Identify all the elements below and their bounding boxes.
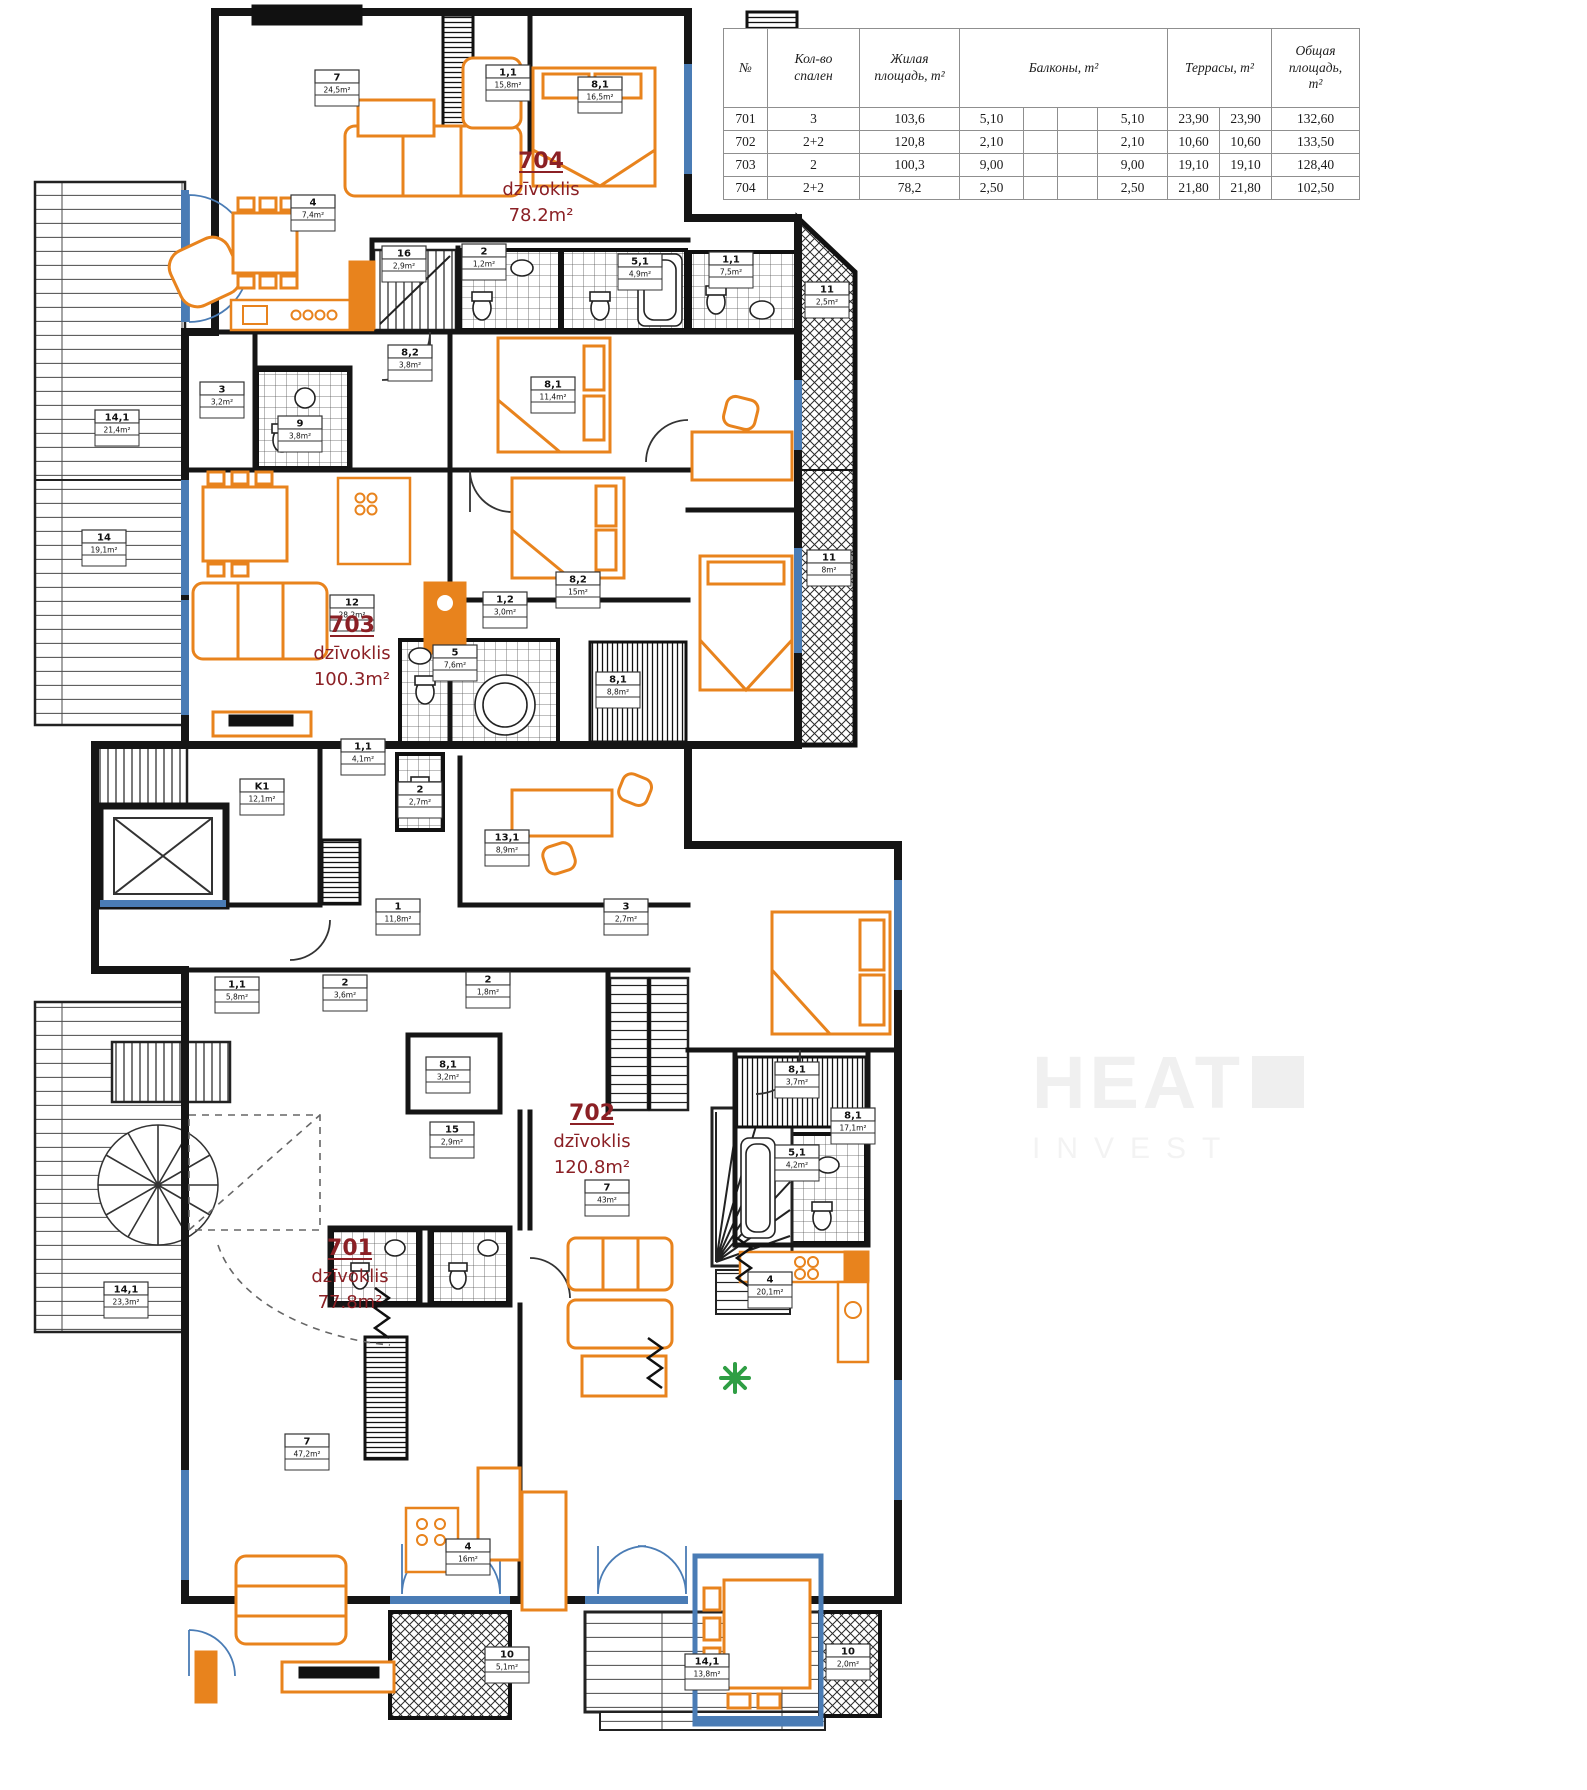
room-number: 8,1 bbox=[544, 380, 562, 391]
room-number: 1,1 bbox=[354, 742, 372, 753]
room-number: 4 bbox=[310, 198, 317, 209]
apartment-number: 701 bbox=[327, 1236, 373, 1261]
spec-table-cell-total: 133,50 bbox=[1272, 131, 1360, 154]
room-label: 8,13,7m² bbox=[775, 1062, 819, 1098]
sink bbox=[750, 301, 774, 319]
spec-table-cell-tsum: 10,60 bbox=[1220, 131, 1272, 154]
room-label: 14,113,8m² bbox=[685, 1654, 729, 1690]
room-area: 2,9m² bbox=[441, 1138, 463, 1147]
toilet bbox=[706, 286, 726, 314]
toilet bbox=[590, 292, 610, 320]
room-number: 8,2 bbox=[401, 348, 419, 359]
room-number: 8,2 bbox=[569, 575, 587, 586]
room-number: 12 bbox=[345, 598, 359, 609]
room-number: 15 bbox=[445, 1125, 459, 1136]
apartment-label: 702dzīvoklis120.8m² bbox=[553, 1101, 630, 1178]
room-area: 8,9m² bbox=[496, 846, 518, 855]
room-area: 2,0m² bbox=[837, 1660, 859, 1669]
floor-plan-page: 724,5m²1,115,8m²8,116,5m²47,4m²162,9m²21… bbox=[0, 0, 1587, 1790]
sink bbox=[817, 1157, 839, 1173]
room-label: 1,23,0m² bbox=[483, 592, 527, 628]
room-number: 1,1 bbox=[499, 68, 517, 79]
apartment-area: 78.2m² bbox=[509, 205, 574, 226]
room-area: 3,2m² bbox=[437, 1073, 459, 1082]
room-label: 1419,1m² bbox=[82, 530, 126, 566]
col-header-living-area: Жилая площадь, m² bbox=[860, 29, 960, 108]
room-label: 13,18,9m² bbox=[485, 830, 529, 866]
desk-ext bbox=[692, 395, 792, 480]
tv-703 bbox=[213, 712, 311, 736]
room-label: 5,14,2m² bbox=[775, 1145, 819, 1181]
room-label: 8,111,4m² bbox=[531, 377, 575, 413]
room-area: 16,5m² bbox=[586, 93, 613, 102]
desk-lobby bbox=[512, 771, 654, 876]
room-area: 5,8m² bbox=[226, 993, 248, 1002]
room-label: 57,6m² bbox=[433, 645, 477, 681]
room-number: 2 bbox=[481, 247, 488, 258]
room-label: 8,23,8m² bbox=[388, 345, 432, 381]
room-label: 118m² bbox=[807, 550, 851, 586]
spec-table-cell-tsum: 19,10 bbox=[1220, 154, 1272, 177]
room-number: 8,1 bbox=[591, 80, 609, 91]
toilet bbox=[449, 1263, 467, 1289]
room-label: 112,5m² bbox=[805, 282, 849, 318]
room-label: 420,1m² bbox=[748, 1272, 792, 1308]
spec-table-cell-b3 bbox=[1058, 154, 1098, 177]
room-label: 743m² bbox=[585, 1180, 629, 1216]
room-label: 416m² bbox=[446, 1539, 490, 1575]
room-area: 15m² bbox=[568, 588, 588, 597]
sink bbox=[409, 648, 431, 664]
room-area: 3,0m² bbox=[494, 608, 516, 617]
room-area: 2,9m² bbox=[393, 262, 415, 271]
room-number: 1,2 bbox=[496, 595, 514, 606]
room-area: 4,2m² bbox=[786, 1161, 808, 1170]
spec-table-cell-b2 bbox=[1024, 154, 1058, 177]
room-number: 14,1 bbox=[695, 1657, 720, 1668]
apartment-number: 704 bbox=[518, 149, 564, 174]
room-label: K112,1m² bbox=[240, 779, 284, 815]
cabinet-701b bbox=[522, 1492, 566, 1610]
room-area: 4,9m² bbox=[629, 270, 651, 279]
room-area: 7,5m² bbox=[720, 268, 742, 277]
room-number: 1 bbox=[395, 902, 402, 913]
spec-table-cell-num: 703 bbox=[724, 154, 768, 177]
spec-table-row: 7032100,39,009,0019,1019,10128,40 bbox=[724, 154, 1360, 177]
spec-table-cell-bsum: 2,50 bbox=[1098, 177, 1168, 200]
room-area: 20,1m² bbox=[756, 1288, 783, 1297]
spec-table-cell-tsum: 23,90 bbox=[1220, 108, 1272, 131]
col-header-bedrooms: Кол-во спален bbox=[768, 29, 860, 108]
room-number: 11 bbox=[820, 285, 834, 296]
room-area: 43m² bbox=[597, 1196, 617, 1205]
room-number: 2 bbox=[342, 978, 349, 989]
room-number: 7 bbox=[304, 1437, 311, 1448]
apartment-number: 703 bbox=[329, 613, 375, 638]
room-area: 5,1m² bbox=[496, 1663, 518, 1672]
room-area: 17,1m² bbox=[839, 1124, 866, 1133]
room-number: K1 bbox=[255, 782, 270, 793]
room-number: 5 bbox=[452, 648, 459, 659]
room-label: 22,7m² bbox=[398, 782, 442, 818]
spec-table-cell-living: 120,8 bbox=[860, 131, 960, 154]
wood-deck-top-left bbox=[35, 182, 185, 725]
spec-table-cell-t1: 19,10 bbox=[1168, 154, 1220, 177]
room-area: 12,1m² bbox=[248, 795, 275, 804]
spec-table-cell-num: 701 bbox=[724, 108, 768, 131]
toilet bbox=[472, 292, 492, 320]
room-number: 3 bbox=[623, 902, 630, 913]
room-label: 1,115,8m² bbox=[486, 65, 530, 101]
room-area: 21,4m² bbox=[103, 426, 130, 435]
room-label: 8,215m² bbox=[556, 572, 600, 608]
spec-table-cell-living: 100,3 bbox=[860, 154, 960, 177]
toilet bbox=[415, 676, 435, 704]
spec-table-cell-b3 bbox=[1058, 108, 1098, 131]
room-label: 14,121,4m² bbox=[95, 410, 139, 446]
room-label: 21,8m² bbox=[466, 972, 510, 1008]
spec-table-cell-living: 78,2 bbox=[860, 177, 960, 200]
spec-table-cell-b3 bbox=[1058, 131, 1098, 154]
room-label: 1,17,5m² bbox=[709, 252, 753, 288]
spec-table-cell-num: 702 bbox=[724, 131, 768, 154]
room-number: 13,1 bbox=[495, 833, 520, 844]
spec-table-cell-bsum: 2,10 bbox=[1098, 131, 1168, 154]
spec-table-cell-total: 132,60 bbox=[1272, 108, 1360, 131]
spec-table-cell-bsum: 5,10 bbox=[1098, 108, 1168, 131]
dining-704 bbox=[233, 198, 297, 288]
room-area: 2,5m² bbox=[816, 298, 838, 307]
spec-table-cell-b1: 2,50 bbox=[960, 177, 1024, 200]
room-number: 8,1 bbox=[609, 675, 627, 686]
room-area: 16m² bbox=[458, 1555, 478, 1564]
spec-table-cell-t1: 21,80 bbox=[1168, 177, 1220, 200]
room-area: 1,8m² bbox=[477, 988, 499, 997]
spec-table-cell-bedrooms: 2 bbox=[768, 154, 860, 177]
room-label: 8,117,1m² bbox=[831, 1108, 875, 1144]
room-label: 724,5m² bbox=[315, 70, 359, 106]
spec-table-cell-b1: 9,00 bbox=[960, 154, 1024, 177]
room-label: 8,13,2m² bbox=[426, 1057, 470, 1093]
room-area: 3,7m² bbox=[786, 1078, 808, 1087]
room-area: 2,7m² bbox=[615, 915, 637, 924]
spec-table-cell-b2 bbox=[1024, 131, 1058, 154]
room-number: 7 bbox=[604, 1183, 611, 1194]
apartment-type: dzīvoklis bbox=[311, 1266, 388, 1287]
room-label: 8,116,5m² bbox=[578, 77, 622, 113]
room-number: 14,1 bbox=[105, 413, 130, 424]
room-area: 11,4m² bbox=[539, 393, 566, 402]
apartment-type: dzīvoklis bbox=[313, 643, 390, 664]
spec-table-cell-b3 bbox=[1058, 177, 1098, 200]
room-number: 2 bbox=[485, 975, 492, 986]
room-number: 8,1 bbox=[788, 1065, 806, 1076]
room-area: 3,6m² bbox=[334, 991, 356, 1000]
spec-table-cell-total: 102,50 bbox=[1272, 177, 1360, 200]
room-label: 33,2m² bbox=[200, 382, 244, 418]
bed-702 bbox=[772, 912, 890, 1034]
room-number: 5,1 bbox=[788, 1148, 806, 1159]
spec-table-cell-b1: 2,10 bbox=[960, 131, 1024, 154]
room-label: 162,9m² bbox=[382, 246, 426, 282]
sink bbox=[385, 1240, 405, 1256]
room-label: 5,14,9m² bbox=[618, 254, 662, 290]
apartment-spec-table: № Кол-во спален Жилая площадь, m² Балкон… bbox=[723, 28, 1360, 200]
room-number: 2 bbox=[417, 785, 424, 796]
dining-703 bbox=[203, 472, 287, 576]
spec-table-cell-total: 128,40 bbox=[1272, 154, 1360, 177]
room-area: 1,2m² bbox=[473, 260, 495, 269]
apartment-area: 100.3m² bbox=[314, 669, 390, 690]
spec-table-row: 7022+2120,82,102,1010,6010,60133,50 bbox=[724, 131, 1360, 154]
room-label: 111,8m² bbox=[376, 899, 420, 935]
room-number: 14 bbox=[97, 533, 111, 544]
room-label: 1,14,1m² bbox=[341, 739, 385, 775]
door-panel-701 bbox=[196, 1652, 216, 1702]
room-label: 14,123,3m² bbox=[104, 1282, 148, 1318]
room-area: 3,2m² bbox=[211, 398, 233, 407]
apartment-number: 702 bbox=[569, 1101, 615, 1126]
room-number: 11 bbox=[822, 553, 836, 564]
apartment-area: 120.8m² bbox=[554, 1157, 630, 1178]
room-area: 3,8m² bbox=[399, 361, 421, 370]
room-area: 11,8m² bbox=[384, 915, 411, 924]
room-area: 7,6m² bbox=[444, 661, 466, 670]
col-header-total-area: Общая площадь, m² bbox=[1272, 29, 1360, 108]
room-number: 3 bbox=[219, 385, 226, 396]
room-label: 8,18,8m² bbox=[596, 672, 640, 708]
sofa-703 bbox=[193, 583, 327, 659]
room-number: 4 bbox=[465, 1542, 472, 1553]
room-label: 21,2m² bbox=[462, 244, 506, 280]
room-area: 19,1m² bbox=[90, 546, 117, 555]
room-label: 102,0m² bbox=[826, 1644, 870, 1680]
room-number: 8,1 bbox=[844, 1111, 862, 1122]
sofa-701 bbox=[236, 1556, 346, 1644]
room-number: 10 bbox=[500, 1650, 514, 1661]
room-area: 3,8m² bbox=[289, 432, 311, 441]
room-number: 9 bbox=[297, 419, 304, 430]
room-area: 24,5m² bbox=[323, 86, 350, 95]
room-area: 23,3m² bbox=[112, 1298, 139, 1307]
floor-plan: 724,5m²1,115,8m²8,116,5m²47,4m²162,9m²21… bbox=[0, 0, 1587, 1790]
spec-table-cell-bedrooms: 2+2 bbox=[768, 131, 860, 154]
toilet bbox=[812, 1202, 832, 1230]
room-number: 10 bbox=[841, 1647, 855, 1658]
room-label: 105,1m² bbox=[485, 1647, 529, 1683]
spec-table-row: 7013103,65,105,1023,9023,90132,60 bbox=[724, 108, 1360, 131]
room-number: 1,1 bbox=[228, 980, 246, 991]
spiral-stair bbox=[98, 1125, 218, 1245]
spec-table-cell-t1: 23,90 bbox=[1168, 108, 1220, 131]
room-label: 152,9m² bbox=[430, 1122, 474, 1158]
bed-low bbox=[512, 478, 624, 578]
apartment-area: 77.8m² bbox=[318, 1292, 383, 1313]
spec-table-cell-living: 103,6 bbox=[860, 108, 960, 131]
spec-table-row: 7042+278,22,502,5021,8021,80102,50 bbox=[724, 177, 1360, 200]
room-number: 14,1 bbox=[114, 1285, 139, 1296]
spec-table-cell-b2 bbox=[1024, 108, 1058, 131]
tv-701 bbox=[282, 1662, 394, 1692]
plant-icon bbox=[721, 1364, 749, 1392]
spec-table-cell-bedrooms: 3 bbox=[768, 108, 860, 131]
room-area: 4,1m² bbox=[352, 755, 374, 764]
spec-table-cell-bedrooms: 2+2 bbox=[768, 177, 860, 200]
spec-table-cell-tsum: 21,80 bbox=[1220, 177, 1272, 200]
col-header-terraces: Террасы, m² bbox=[1168, 29, 1272, 108]
elevator bbox=[100, 806, 226, 907]
room-label: 23,6m² bbox=[323, 975, 367, 1011]
room-number: 1,1 bbox=[722, 255, 740, 266]
room-number: 7 bbox=[334, 73, 341, 84]
room-label: 747,2m² bbox=[285, 1434, 329, 1470]
room-area: 8m² bbox=[821, 566, 836, 575]
room-number: 16 bbox=[397, 249, 411, 260]
room-label: 1,15,8m² bbox=[215, 977, 259, 1013]
spec-table-cell-t1: 10,60 bbox=[1168, 131, 1220, 154]
room-area: 8,8m² bbox=[607, 688, 629, 697]
room-label: 47,4m² bbox=[291, 195, 335, 231]
tv-console bbox=[253, 6, 361, 24]
coffee-table-704 bbox=[358, 100, 434, 136]
spec-table-cell-b1: 5,10 bbox=[960, 108, 1024, 131]
room-area: 47,2m² bbox=[293, 1450, 320, 1459]
room-area: 13,8m² bbox=[693, 1670, 720, 1679]
col-header-number: № bbox=[724, 29, 768, 108]
room-number: 8,1 bbox=[439, 1060, 457, 1071]
room-number: 4 bbox=[767, 1275, 774, 1286]
room-number: 5,1 bbox=[631, 257, 649, 268]
room-area: 15,8m² bbox=[494, 81, 521, 90]
spec-table-cell-b2 bbox=[1024, 177, 1058, 200]
room-label: 32,7m² bbox=[604, 899, 648, 935]
cabinet-704 bbox=[350, 262, 374, 328]
sink bbox=[478, 1240, 498, 1256]
apartment-type: dzīvoklis bbox=[502, 179, 579, 200]
shower bbox=[295, 388, 315, 408]
col-header-balconies: Балконы, m² bbox=[960, 29, 1168, 108]
apartment-type: dzīvoklis bbox=[553, 1131, 630, 1152]
room-area: 7,4m² bbox=[302, 211, 324, 220]
room-area: 2,7m² bbox=[409, 798, 431, 807]
room-label: 93,8m² bbox=[278, 416, 322, 452]
sink bbox=[511, 260, 533, 276]
spec-table-cell-num: 704 bbox=[724, 177, 768, 200]
spec-table-cell-bsum: 9,00 bbox=[1098, 154, 1168, 177]
bed-ext bbox=[700, 556, 792, 690]
